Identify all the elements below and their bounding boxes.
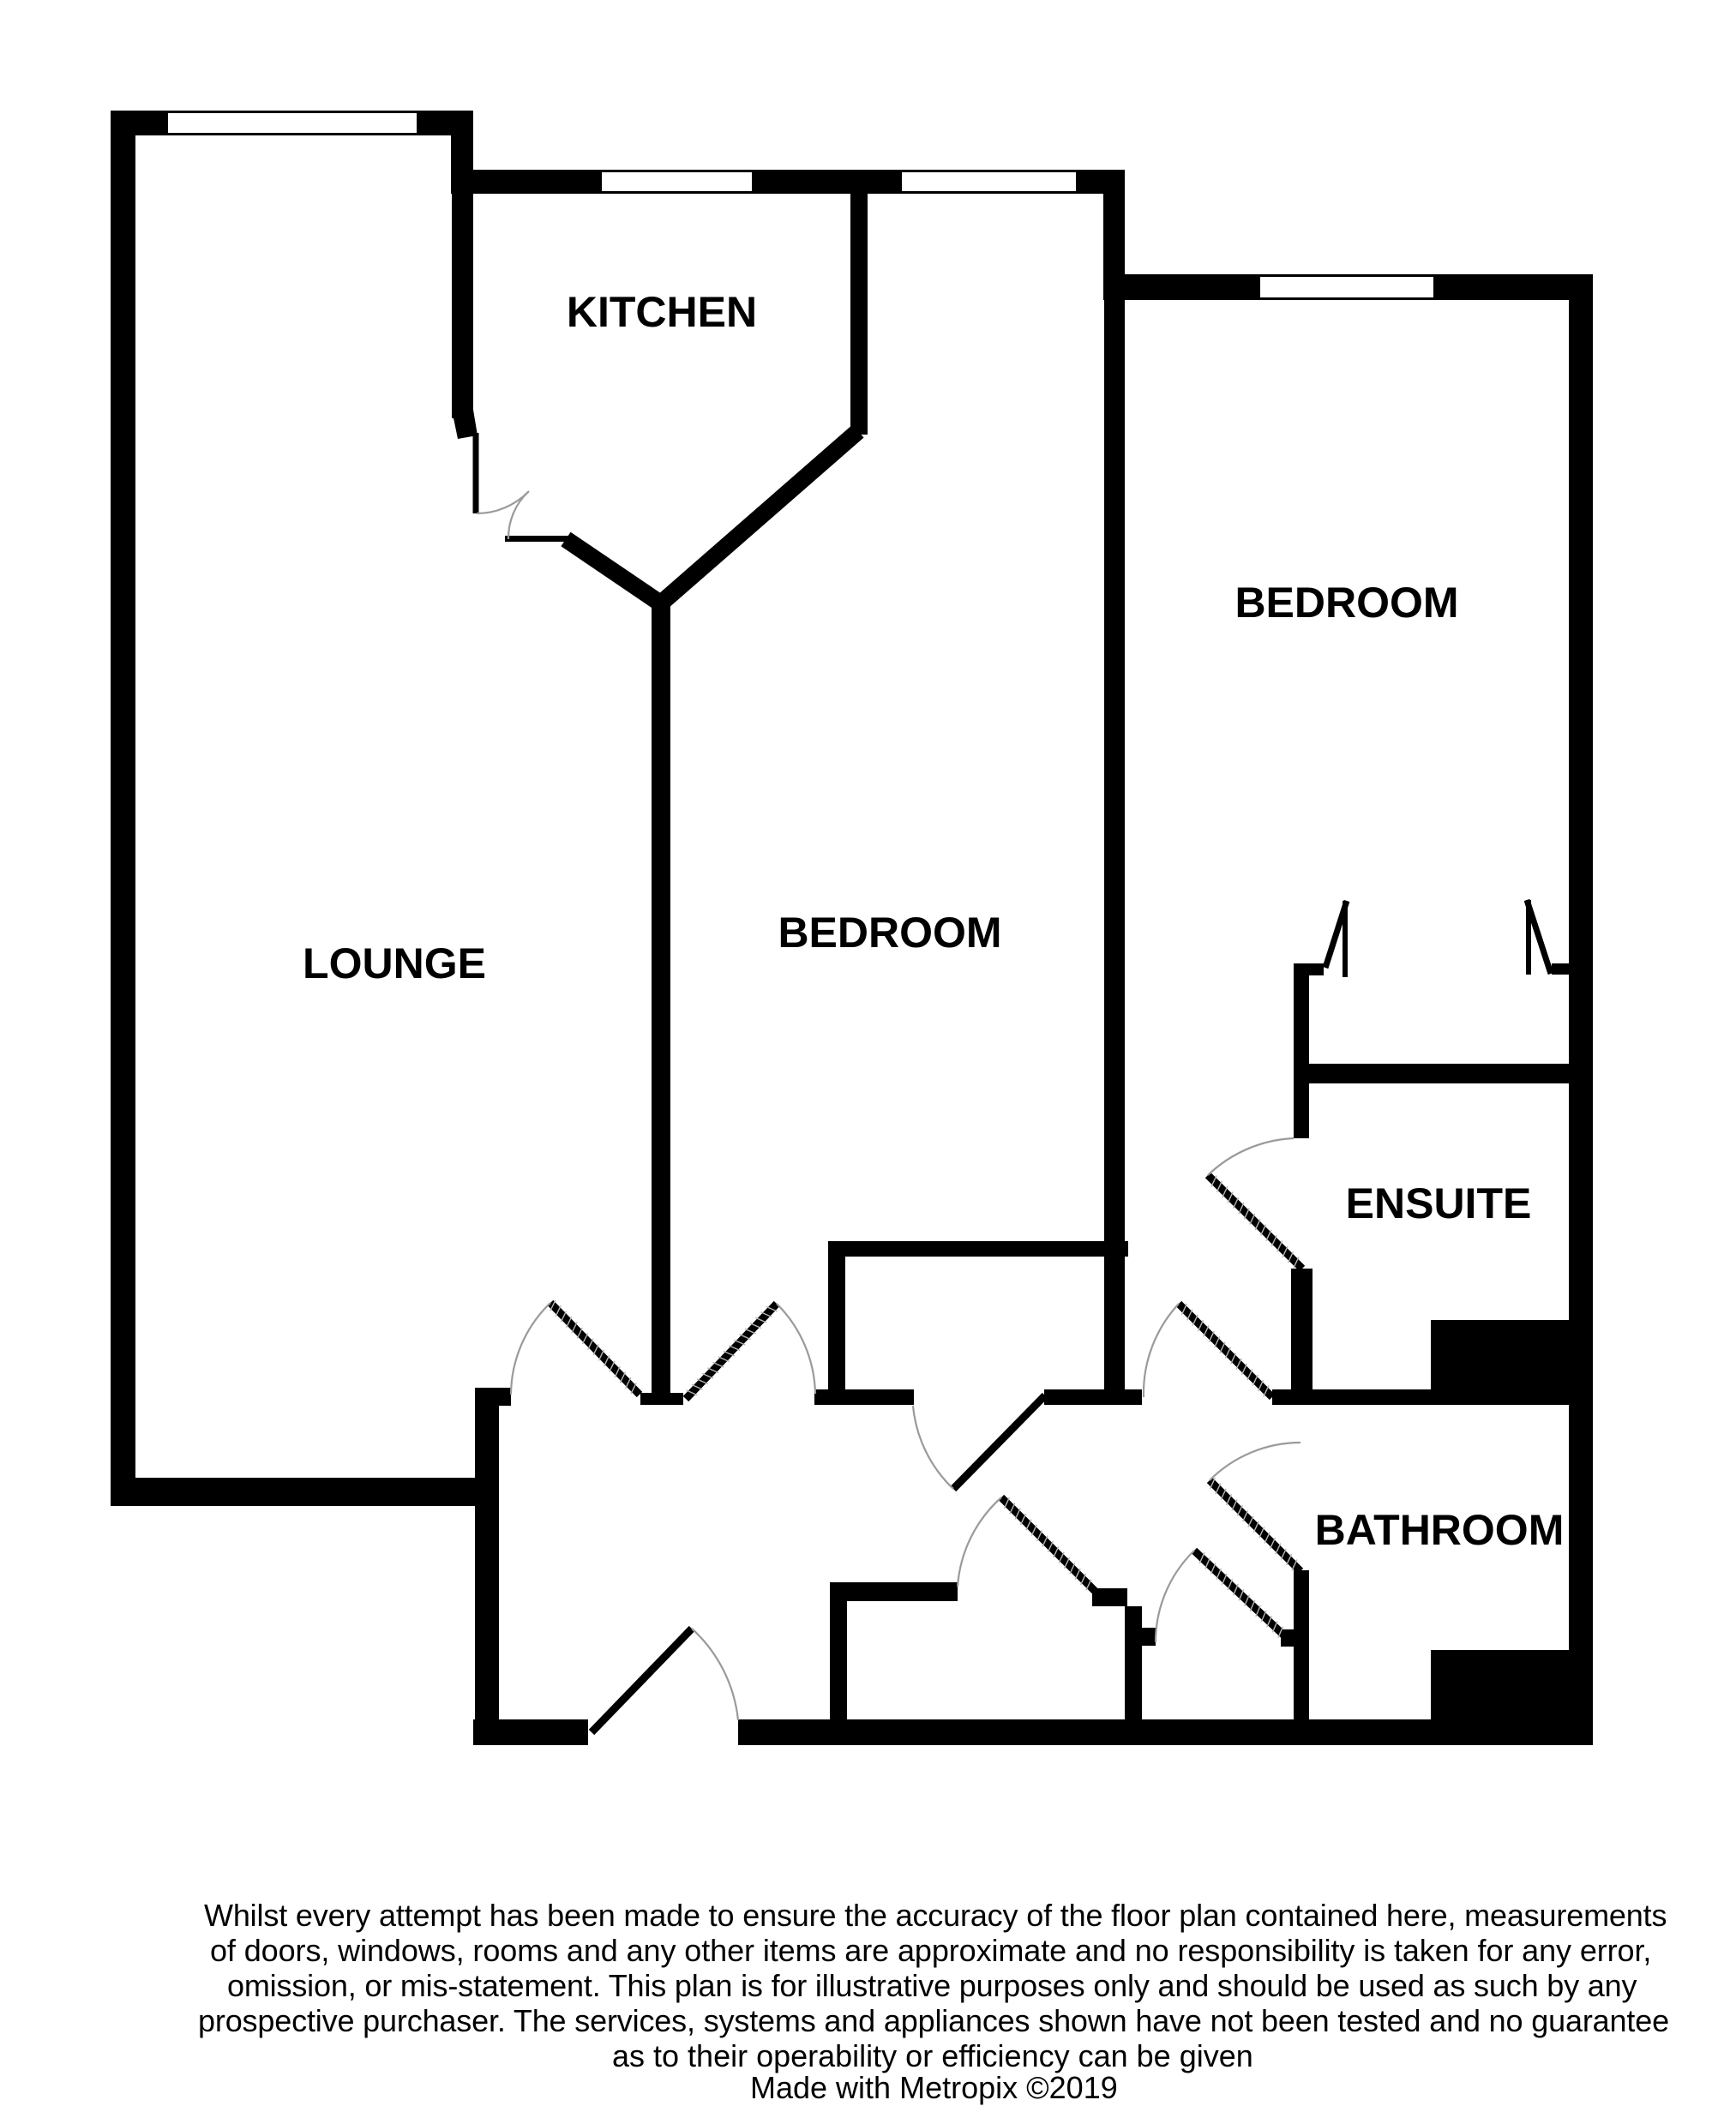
svg-text:Whilst every attempt has been: Whilst every attempt has been made to en… <box>204 1898 1667 1933</box>
svg-text:BATHROOM: BATHROOM <box>1315 1506 1565 1554</box>
svg-text:prospective purchaser. The ser: prospective purchaser. The services, sys… <box>198 2003 1669 2038</box>
svg-text:Made with Metropix ©2019: Made with Metropix ©2019 <box>750 2070 1118 2105</box>
svg-text:KITCHEN: KITCHEN <box>567 288 757 336</box>
svg-text:of doors, windows, rooms and a: of doors, windows, rooms and any other i… <box>210 1933 1651 1968</box>
svg-text:omission, or mis-statement. Th: omission, or mis-statement. This plan is… <box>227 1968 1637 2003</box>
svg-text:as to their operability or eff: as to their operability or efficiency ca… <box>612 2038 1253 2073</box>
svg-text:LOUNGE: LOUNGE <box>303 939 486 987</box>
svg-text:ENSUITE: ENSUITE <box>1346 1179 1532 1227</box>
svg-text:BEDROOM: BEDROOM <box>778 909 1001 957</box>
svg-text:BEDROOM: BEDROOM <box>1234 579 1458 627</box>
